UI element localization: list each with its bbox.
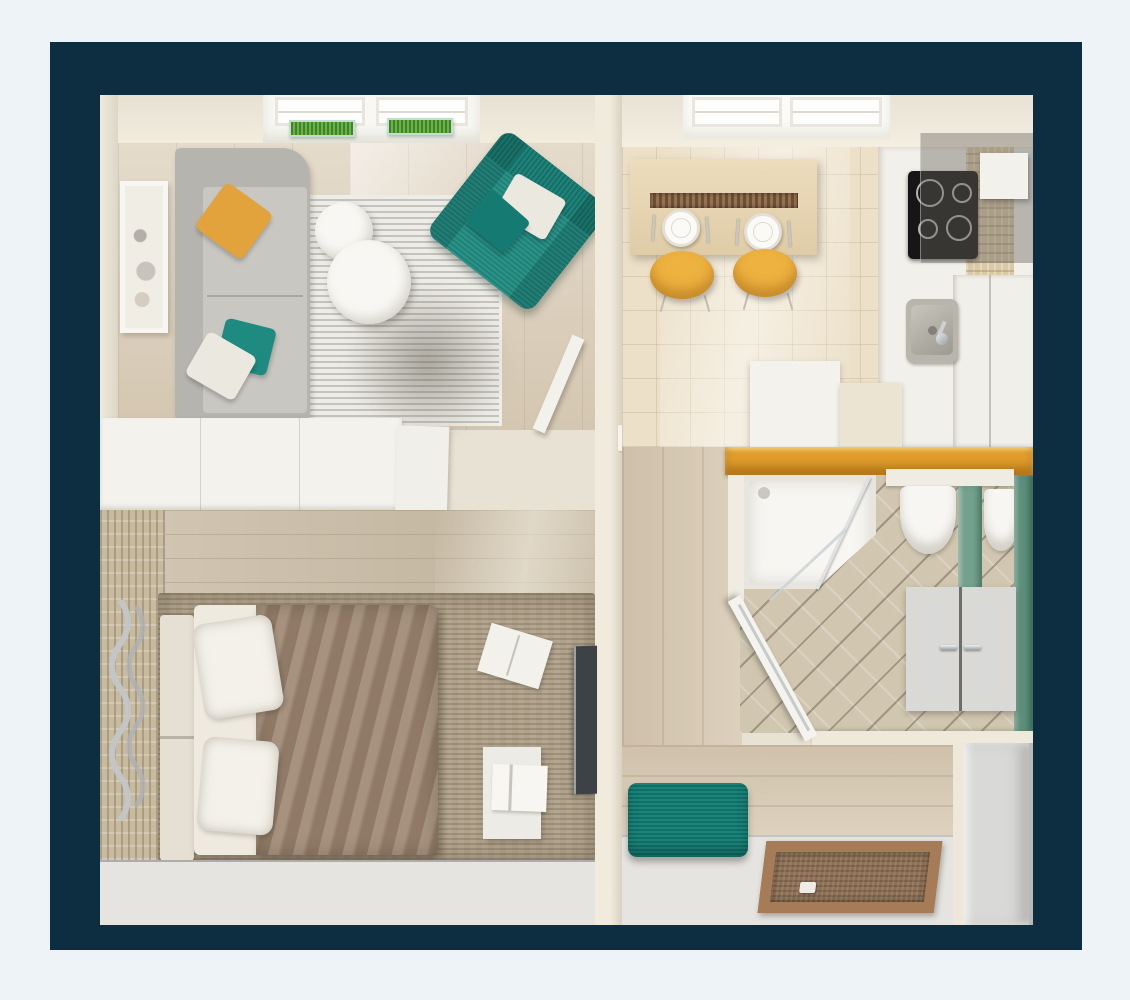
green-accent-wall (1014, 475, 1033, 747)
bathroom-door-jamb (728, 475, 744, 605)
green-glass-partition (958, 486, 982, 592)
hallway-wood-floor (622, 447, 742, 745)
bathroom-shelf (886, 469, 1014, 486)
skylight-window-icon (692, 97, 782, 127)
partition-wall (595, 95, 622, 925)
grass-planter-icon (289, 120, 355, 137)
silver-wavy-wall-decor-icon (106, 600, 154, 842)
sink-basin (911, 305, 953, 355)
cabinet-seam (959, 587, 962, 711)
faucet-icon (936, 333, 948, 345)
wall-cabinet (980, 153, 1028, 199)
kitchen-cabinet-block (750, 361, 840, 451)
framed-wall-art (120, 181, 168, 333)
bed-headboard (160, 615, 194, 861)
bed-pillow (191, 613, 285, 720)
cutlery-icon (735, 219, 740, 245)
fridge-cabinet (953, 275, 1033, 447)
kitchen-cabinet-block (840, 383, 902, 447)
storage-box (491, 764, 548, 812)
cabinet-handle-icon (940, 645, 957, 650)
render-backdrop (0, 0, 1130, 1000)
bed-pillow (196, 736, 280, 836)
floor-plan (100, 95, 1033, 925)
cabinet-handle-icon (964, 645, 981, 650)
cutlery-icon (651, 215, 656, 241)
kitchen-sink (906, 299, 958, 363)
round-coffee-table-large (327, 240, 411, 324)
place-setting-plate (744, 213, 782, 251)
table-runner (650, 193, 798, 208)
living-left-wall (100, 95, 118, 430)
wardrobe-unit (100, 418, 402, 510)
skylight-window-icon (790, 97, 882, 127)
cutlery-icon (705, 217, 710, 243)
yellow-chair (650, 251, 714, 299)
yellow-chair (733, 249, 797, 297)
wood-framed-floor-mat (758, 841, 943, 913)
place-setting-plate (662, 209, 700, 247)
wall-tv (574, 646, 597, 795)
dining-table (630, 159, 817, 255)
cutlery-icon (787, 221, 792, 247)
bedroom-bottom-wall (100, 860, 595, 925)
mat-latch (799, 882, 816, 893)
vanity-cabinet (906, 587, 1016, 711)
wall-hung-bidet (984, 489, 1018, 551)
entry-door-jamb (953, 743, 963, 925)
grass-planter-icon (387, 118, 453, 135)
teal-ottoman-bench (628, 783, 748, 857)
entry-door (963, 743, 1033, 925)
wardrobe-side-unit (395, 425, 449, 522)
taupe-blanket (256, 605, 438, 855)
frame-border (50, 42, 1082, 950)
